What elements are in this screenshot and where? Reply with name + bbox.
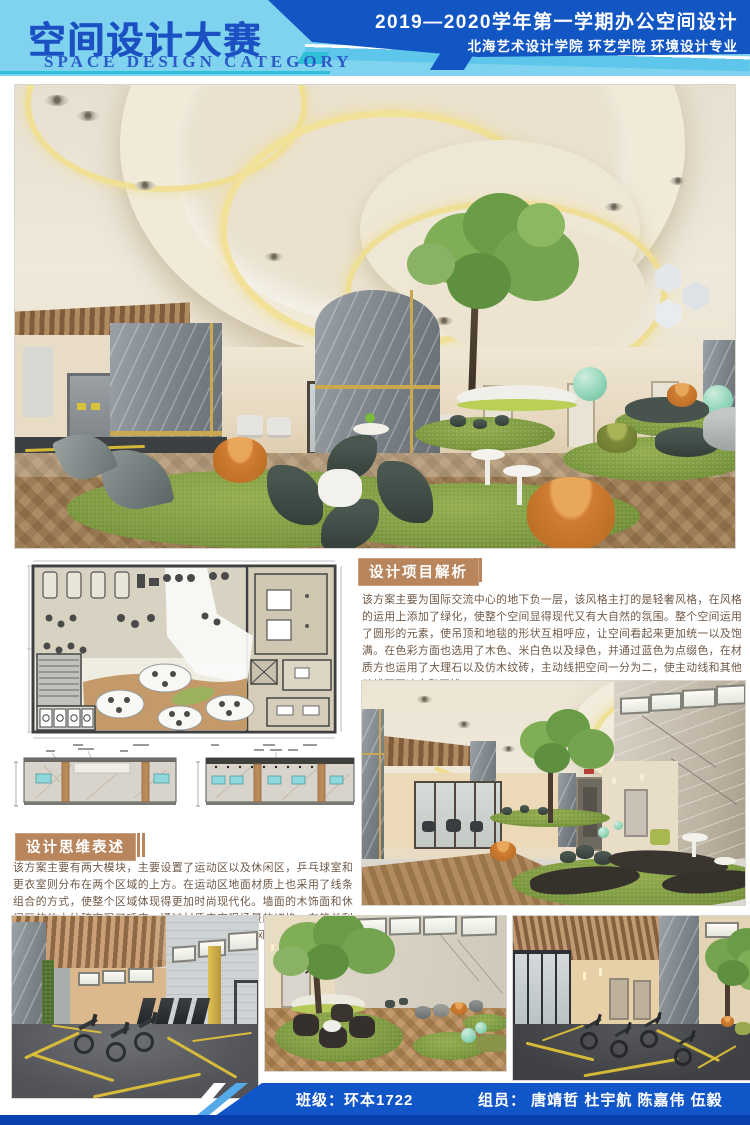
footer-navy-strip [0, 1115, 750, 1125]
olive-bench [477, 1034, 506, 1052]
photo-gym-left [12, 916, 258, 1098]
pedestal-table [682, 833, 708, 842]
mint-ball [573, 367, 607, 401]
table-stem [517, 473, 522, 505]
competition-subtitle-en: SPACE DESIGN CATEGORY [44, 52, 353, 72]
pedestal-table [471, 449, 505, 460]
tree-planter-bench [457, 385, 577, 411]
orange-pouf [213, 437, 267, 483]
heading-bar [142, 833, 145, 857]
lounge-chair [237, 415, 263, 438]
photo-gym-right [513, 916, 750, 1080]
dark-pouf [293, 1014, 319, 1036]
analysis-heading: 设计项目解析 [358, 558, 479, 586]
class-label: 班级：环本1722 [296, 1089, 413, 1110]
white-center-table [318, 469, 362, 507]
exit-sign [584, 769, 594, 774]
machine-pad [77, 403, 86, 410]
heading-bar [479, 558, 482, 582]
heading-bar [474, 558, 477, 582]
olive-pouf [597, 423, 637, 453]
tree-platform [291, 994, 365, 1014]
orange-pouf [667, 383, 697, 407]
spin-bike [671, 1028, 701, 1062]
pedestal-table [714, 857, 736, 865]
heading-bar [137, 833, 140, 857]
team-label: 组员： 唐靖哲 杜宇航 陈嘉伟 伍毅 [478, 1089, 723, 1110]
thinking-heading: 设计思维表述 [15, 833, 136, 861]
design-competition-poster: 空间设计大赛 SPACE DESIGN CATEGORY 2019—2020学年… [0, 0, 750, 1125]
machine-pad [91, 403, 100, 410]
glass-doors [414, 781, 502, 849]
white-table [323, 1020, 341, 1032]
dark-pouf [349, 1016, 375, 1038]
analysis-body: 该方案主要为国际交流中心的地下负一层，该风格主打的是轻奢风格，在风格的运用上添加… [362, 592, 742, 694]
side-table [353, 423, 389, 435]
exercise-bike [130, 1010, 160, 1046]
exercise-bike [102, 1020, 132, 1056]
orange-pouf [490, 841, 516, 861]
lounge-chair [267, 417, 291, 438]
elevation-drawings [10, 746, 360, 832]
orange-pouf-large [527, 477, 615, 548]
spin-bike [637, 1010, 667, 1044]
header-banner: 空间设计大赛 SPACE DESIGN CATEGORY 2019—2020学年… [0, 0, 750, 76]
spin-bike [577, 1012, 607, 1046]
floor-plan [15, 556, 355, 756]
bike-silhouette [422, 821, 435, 832]
photo-lounge-middle [265, 916, 506, 1071]
glass-wall [513, 950, 571, 1030]
green-apple-decor [365, 413, 375, 423]
table-stem [485, 457, 490, 485]
exercise-bike [70, 1012, 100, 1048]
marble-pier [362, 709, 384, 861]
mirror [54, 968, 70, 1032]
hero-rendering [15, 85, 735, 548]
pedestal-table [503, 465, 541, 477]
course-title: 2019—2020学年第一学期办公空间设计 [375, 7, 738, 34]
spin-bike [607, 1020, 637, 1054]
lime-cube-stool [650, 829, 670, 845]
department-line: 北海艺术设计学院 环艺学院 环境设计专业 [467, 35, 738, 55]
bike-silhouette [470, 821, 483, 832]
bike-silhouette [446, 819, 461, 832]
mirror-panel [23, 347, 53, 417]
green-pouf [735, 1022, 750, 1035]
dark-bench [625, 397, 709, 423]
secondary-rendering [362, 681, 745, 905]
tree-trunk [548, 767, 553, 823]
